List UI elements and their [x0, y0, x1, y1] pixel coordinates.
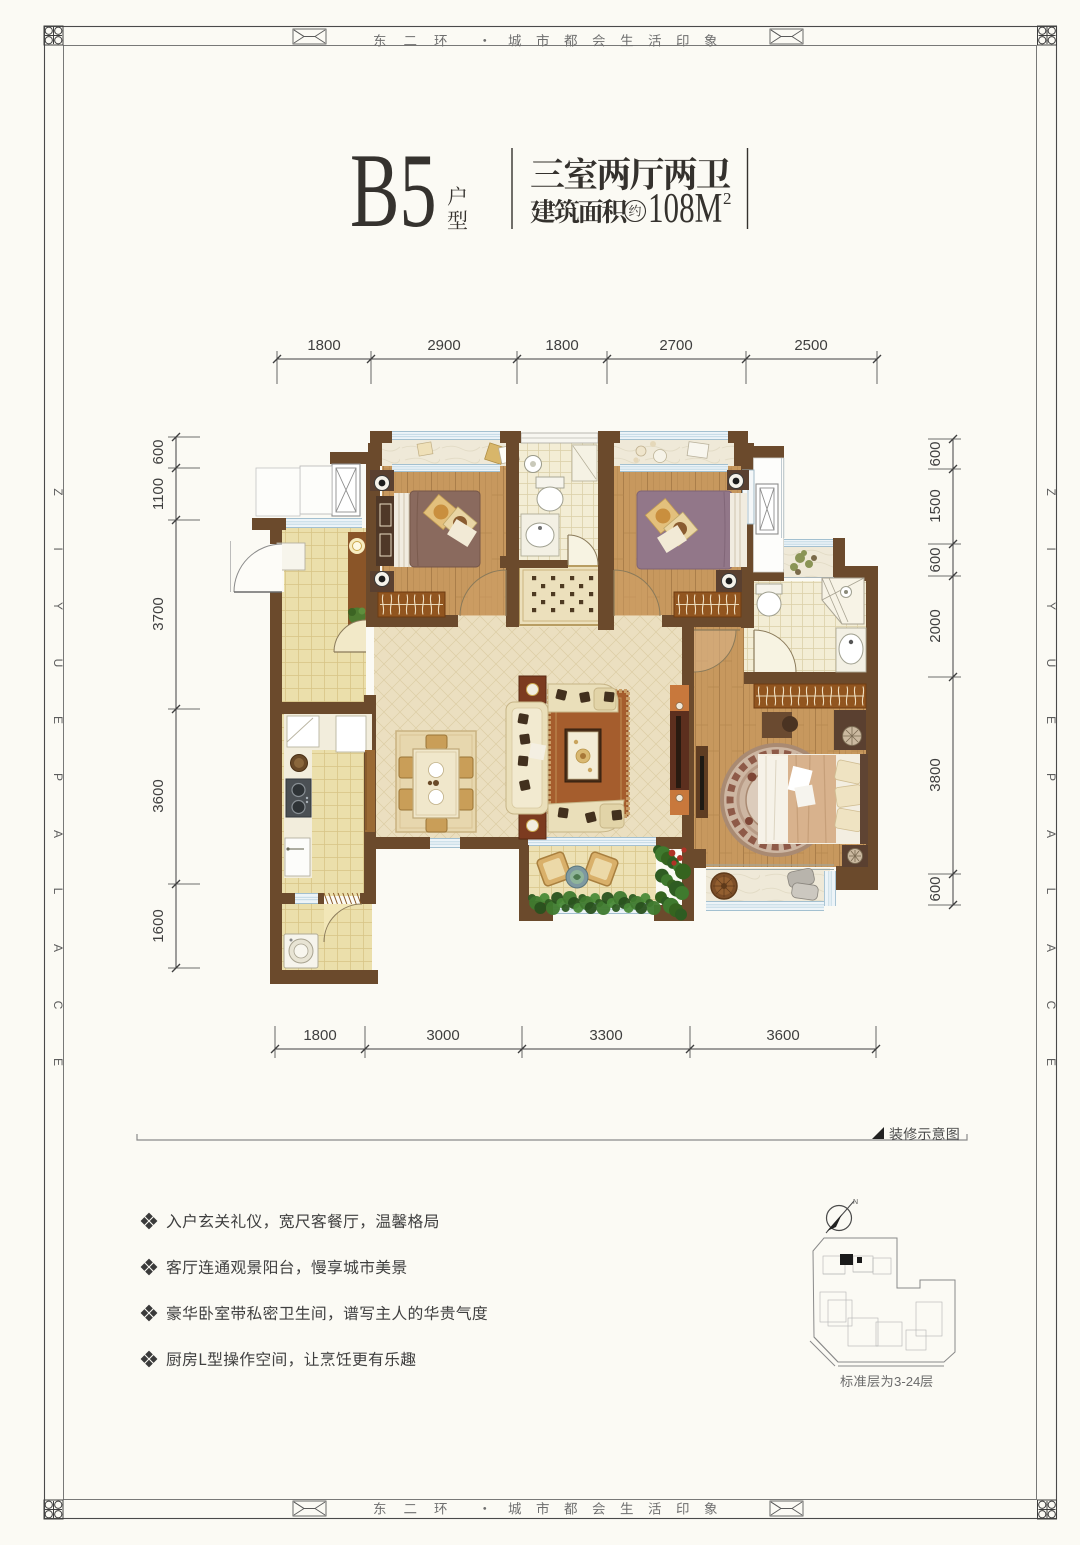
svg-text:E: E: [51, 1058, 65, 1066]
svg-text:A: A: [1044, 944, 1058, 952]
svg-text:3600: 3600: [766, 1027, 799, 1044]
svg-text:P: P: [51, 773, 65, 781]
svg-text:P: P: [1044, 773, 1058, 781]
svg-text:2000: 2000: [927, 609, 944, 642]
svg-text:108M: 108M: [648, 184, 722, 231]
svg-text:600: 600: [927, 441, 944, 466]
svg-text:U: U: [1044, 659, 1058, 668]
svg-text:600: 600: [927, 547, 944, 572]
svg-text:3800: 3800: [927, 758, 944, 791]
svg-text:3000: 3000: [426, 1027, 459, 1044]
svg-text:2700: 2700: [659, 337, 692, 354]
svg-text:E: E: [51, 716, 65, 724]
svg-text:N: N: [853, 1199, 858, 1206]
svg-text:Y: Y: [51, 602, 65, 610]
svg-text:C: C: [1044, 1001, 1058, 1010]
svg-text:A: A: [1044, 830, 1058, 838]
svg-text:E: E: [1044, 716, 1058, 724]
svg-text:A: A: [51, 830, 65, 838]
svg-text:600: 600: [927, 876, 944, 901]
svg-text:600: 600: [150, 439, 167, 464]
svg-text:Z: Z: [1044, 488, 1058, 495]
svg-text:I: I: [51, 547, 65, 550]
svg-text:C: C: [51, 1001, 65, 1010]
svg-text:1600: 1600: [150, 909, 167, 942]
svg-text:2: 2: [723, 189, 732, 208]
svg-text:1100: 1100: [150, 478, 167, 510]
svg-text:3600: 3600: [150, 779, 167, 812]
svg-text:L: L: [1044, 888, 1058, 895]
svg-text:1800: 1800: [545, 337, 578, 354]
svg-text:U: U: [51, 659, 65, 668]
svg-text:1800: 1800: [307, 337, 340, 354]
svg-text:3300: 3300: [589, 1027, 622, 1044]
svg-text:1800: 1800: [303, 1027, 336, 1044]
svg-text:3700: 3700: [150, 597, 167, 630]
svg-text:I: I: [1044, 547, 1058, 550]
svg-text:3-24: 3-24: [894, 1374, 920, 1389]
svg-text:Z: Z: [51, 488, 65, 495]
svg-text:2500: 2500: [794, 337, 827, 354]
svg-text:E: E: [1044, 1058, 1058, 1066]
svg-text:A: A: [51, 944, 65, 952]
svg-text:B5: B5: [350, 131, 437, 249]
svg-text:L: L: [51, 888, 65, 895]
svg-text:Y: Y: [1044, 602, 1058, 610]
svg-text:1500: 1500: [927, 489, 944, 522]
svg-text:2900: 2900: [427, 337, 460, 354]
